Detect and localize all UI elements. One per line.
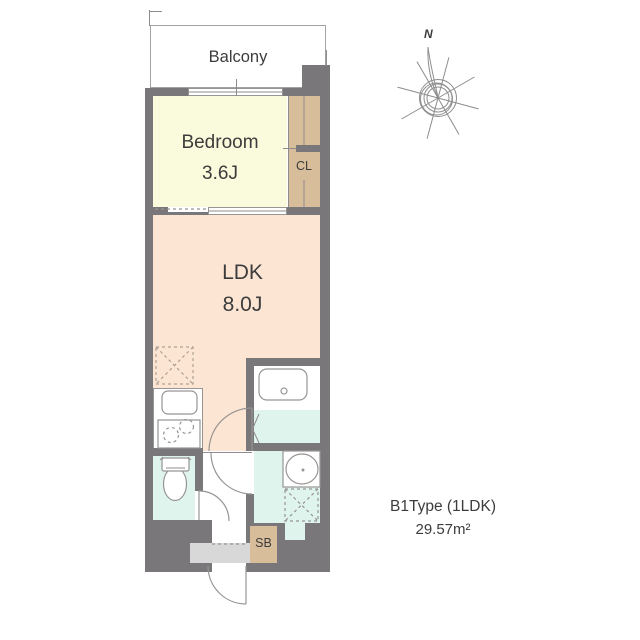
floorplan-page: { "plan": { "balcony_label": "Balcony", … <box>0 0 640 640</box>
sliding-door-lines <box>155 209 287 211</box>
kitchen-sink <box>162 391 197 414</box>
toilet-fixture <box>160 457 191 501</box>
boundary-ticks <box>149 10 327 66</box>
linework-overlay: N <box>0 0 640 640</box>
entrance-door <box>208 544 248 604</box>
wash-basin <box>283 451 320 487</box>
ldk-door <box>209 408 252 451</box>
washing-machine-space <box>285 489 318 521</box>
refrigerator-space <box>156 347 193 384</box>
kitchen-stove <box>158 420 200 449</box>
compass: N <box>397 27 478 139</box>
compass-north-label: N <box>424 27 433 41</box>
bathtub <box>253 369 308 443</box>
window-glazing <box>188 79 283 96</box>
bath-folding-door <box>253 414 260 443</box>
washroom-door <box>211 453 252 494</box>
toilet-door <box>199 491 229 521</box>
closet-lines <box>283 96 304 207</box>
